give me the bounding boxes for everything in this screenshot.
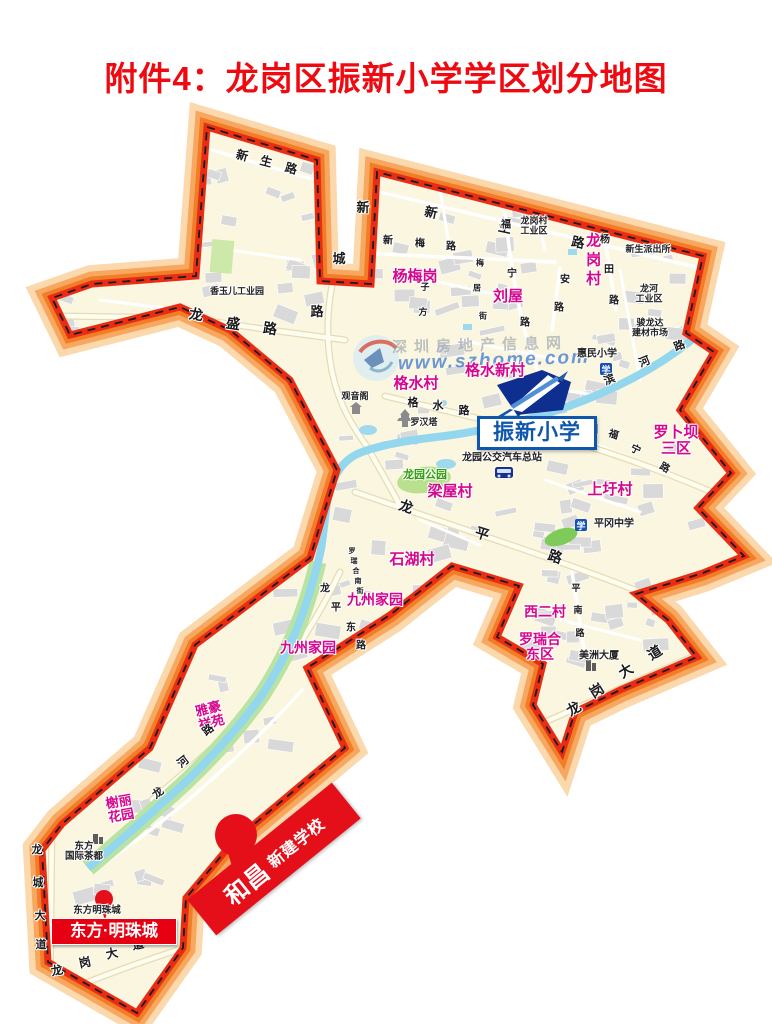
building [385, 459, 404, 470]
building [627, 602, 638, 608]
building [604, 604, 623, 620]
building [291, 265, 310, 279]
building [233, 450, 254, 460]
bus-station-icon [495, 467, 513, 478]
building [205, 711, 219, 725]
building [147, 335, 169, 352]
building [647, 308, 662, 317]
building [277, 282, 293, 294]
building [176, 409, 202, 421]
building [492, 300, 508, 310]
building [152, 340, 180, 361]
building [574, 184, 595, 192]
building [205, 272, 222, 283]
building [371, 540, 386, 556]
watermark: 深圳房地产信息网 www.szhome.com [350, 326, 630, 386]
building [596, 479, 611, 486]
building [495, 237, 514, 253]
building [534, 522, 556, 533]
building [541, 570, 558, 577]
building [206, 419, 225, 430]
school-callout: 振新小学 [477, 416, 597, 450]
building [540, 626, 556, 636]
map-page: 附件4：龙岗区振新小学学区划分地图 [0, 0, 772, 1024]
building [643, 638, 670, 652]
estate-badge: 东方·明珠城 [51, 918, 177, 945]
building [183, 346, 204, 357]
building [616, 175, 629, 188]
building [497, 283, 508, 292]
svg-text:学: 学 [576, 520, 585, 531]
building [249, 421, 261, 431]
building [220, 385, 230, 396]
building [233, 393, 245, 405]
building [362, 590, 375, 601]
building [461, 295, 479, 308]
building [273, 450, 282, 463]
building [408, 296, 427, 310]
building [669, 273, 686, 284]
district-map: 学 学 [0, 0, 772, 1024]
building [566, 631, 579, 643]
building [273, 588, 298, 597]
building [520, 261, 537, 274]
building [277, 459, 299, 468]
building [643, 203, 666, 213]
building [643, 484, 664, 499]
building [163, 333, 186, 343]
building [339, 435, 354, 441]
building [650, 204, 660, 210]
building [412, 266, 427, 279]
school-icon-pinggang: 学 [575, 519, 587, 531]
building [446, 592, 462, 607]
